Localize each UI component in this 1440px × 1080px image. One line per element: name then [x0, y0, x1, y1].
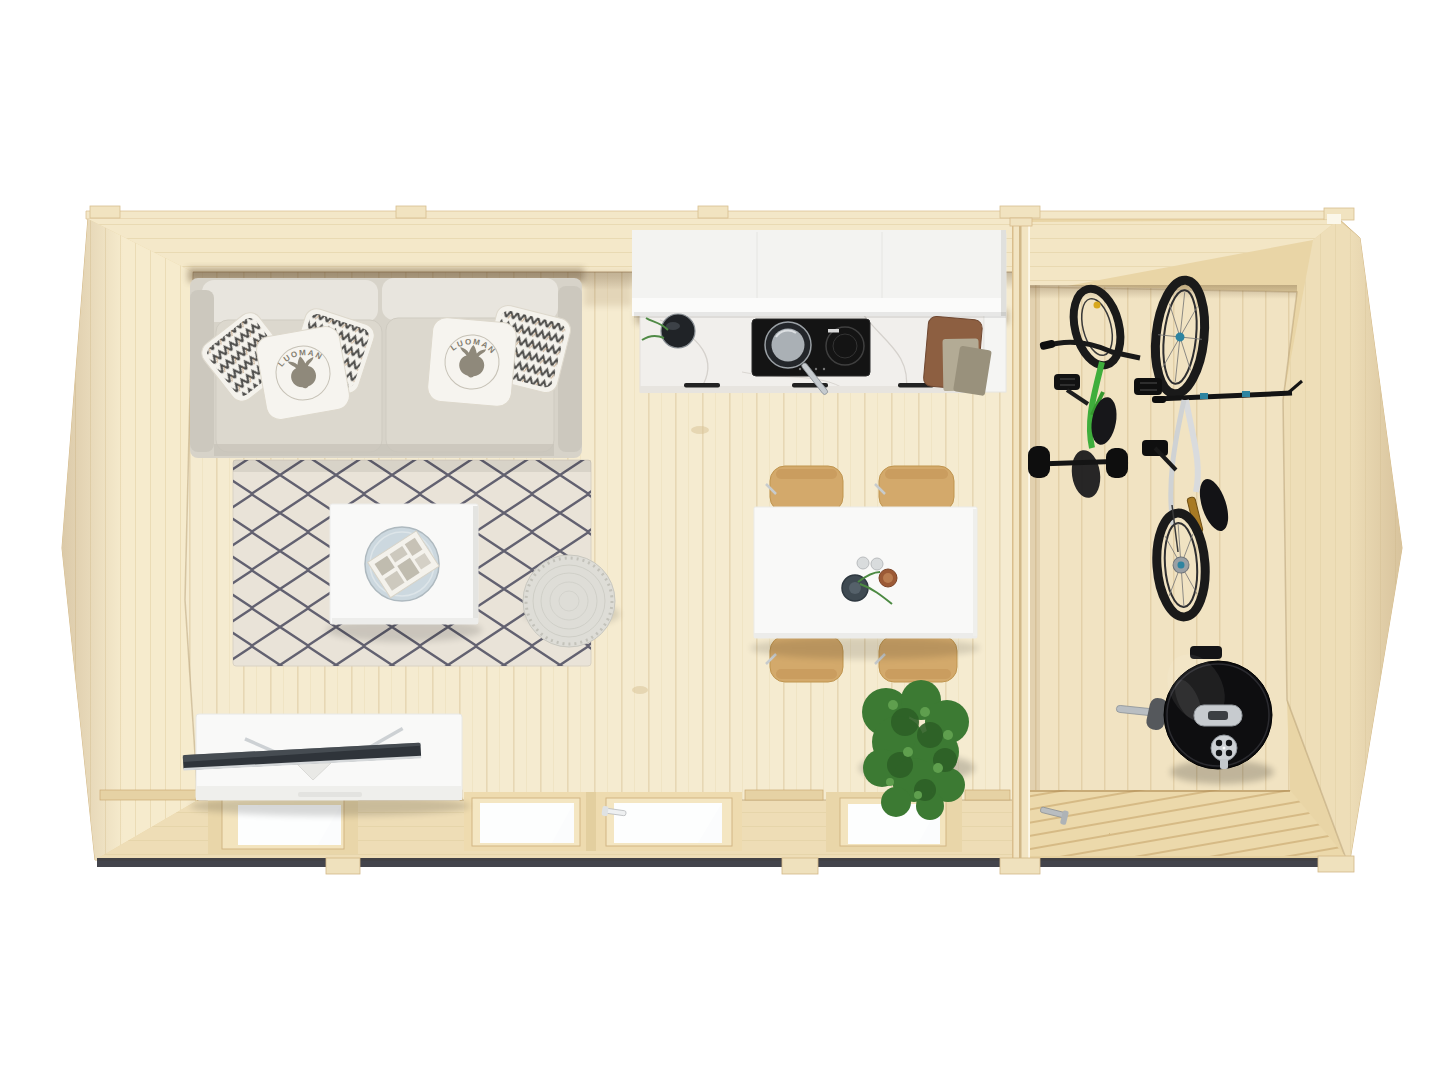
moose-pillow: LUOMAN [426, 316, 517, 407]
wall-trim [965, 790, 1010, 800]
glass-double-door [464, 792, 742, 851]
kitchen [632, 230, 1008, 396]
drinking-glass [871, 558, 883, 570]
dining-table [754, 507, 977, 638]
roof-tab [698, 206, 728, 218]
floor-knot [691, 426, 709, 434]
foot [326, 858, 360, 874]
moose-pillow: LUOMAN [254, 324, 351, 421]
wall-trim [745, 790, 823, 800]
dining-chair [875, 466, 954, 512]
partition-wall [1010, 218, 1032, 858]
sofa-back-cushion [202, 280, 378, 322]
wall-shadow [584, 272, 632, 306]
foot [1318, 856, 1354, 872]
wall-trim [100, 790, 206, 800]
drinking-glass [857, 557, 869, 569]
pedal [1054, 374, 1080, 390]
cooktop-display [828, 329, 839, 333]
serving-tray [365, 527, 439, 601]
roof-tab [90, 206, 120, 218]
corner-trim [1327, 214, 1341, 224]
foot [782, 858, 818, 874]
partition-cap [1010, 218, 1032, 226]
coffee-table [330, 504, 478, 624]
dining-chair [766, 466, 843, 512]
table-shadow [750, 637, 980, 659]
grip [1152, 396, 1166, 403]
training-wheel [1106, 448, 1128, 478]
upper-cabinet [632, 230, 1006, 318]
cabin-floorplan-render: LUOMAN LUOMAN [0, 0, 1440, 1080]
training-wheel [1028, 446, 1050, 478]
foot [1000, 858, 1040, 874]
pouf [523, 555, 615, 647]
sofa-armrest [190, 290, 214, 452]
roof-tab [1000, 206, 1040, 218]
sofa: LUOMAN LUOMAN [190, 278, 582, 458]
drawer-handle [684, 383, 720, 388]
roof-tab [396, 206, 426, 218]
reflector [1094, 302, 1101, 309]
pedal [1134, 378, 1162, 395]
floor-knot [632, 686, 648, 694]
floor-slab-edge [97, 858, 1347, 867]
